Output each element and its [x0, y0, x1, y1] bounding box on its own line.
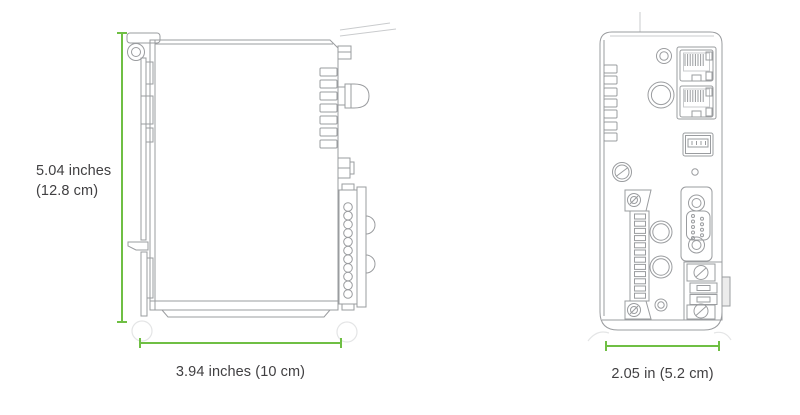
device-body-side	[150, 23, 396, 317]
db9-serial-port	[681, 187, 712, 261]
side-width-dimension-line	[140, 338, 341, 348]
side-width-dimension-label: 3.94 inches (10 cm)	[160, 362, 321, 382]
ethernet-ports	[677, 47, 716, 119]
grounding-screw	[613, 163, 632, 182]
terminal-block-side	[339, 184, 375, 310]
height-label-inches: 5.04 inches	[36, 161, 111, 181]
side-view-drawing	[127, 23, 396, 342]
sma-connector-small	[657, 49, 672, 64]
side-vent-slots	[320, 68, 337, 148]
sma-connector-large	[648, 82, 674, 108]
front-width-dimension-label: 2.05 in (5.2 cm)	[582, 364, 743, 384]
led-indicator	[692, 169, 698, 175]
antenna-connector-side	[338, 84, 369, 108]
front-view-drawing	[588, 12, 731, 341]
side-top-tab	[338, 46, 351, 59]
height-label-cm: (12.8 cm)	[36, 181, 111, 201]
height-dimension-line	[117, 33, 127, 322]
usb-port	[683, 133, 713, 156]
power-terminal	[684, 262, 730, 320]
side-small-connector	[338, 158, 354, 178]
front-vent-slots	[604, 65, 617, 141]
height-dimension-label: 5.04 inches (12.8 cm)	[36, 161, 111, 201]
side-feet-ghost	[132, 321, 357, 342]
front-width-dimension-line	[606, 341, 719, 351]
device-dimension-diagram: 5.04 inches (12.8 cm) 3.94 inches (10 cm…	[0, 0, 800, 415]
sma-connectors-front	[650, 221, 672, 311]
io-terminal-block	[625, 190, 651, 319]
technical-drawing	[0, 0, 800, 415]
